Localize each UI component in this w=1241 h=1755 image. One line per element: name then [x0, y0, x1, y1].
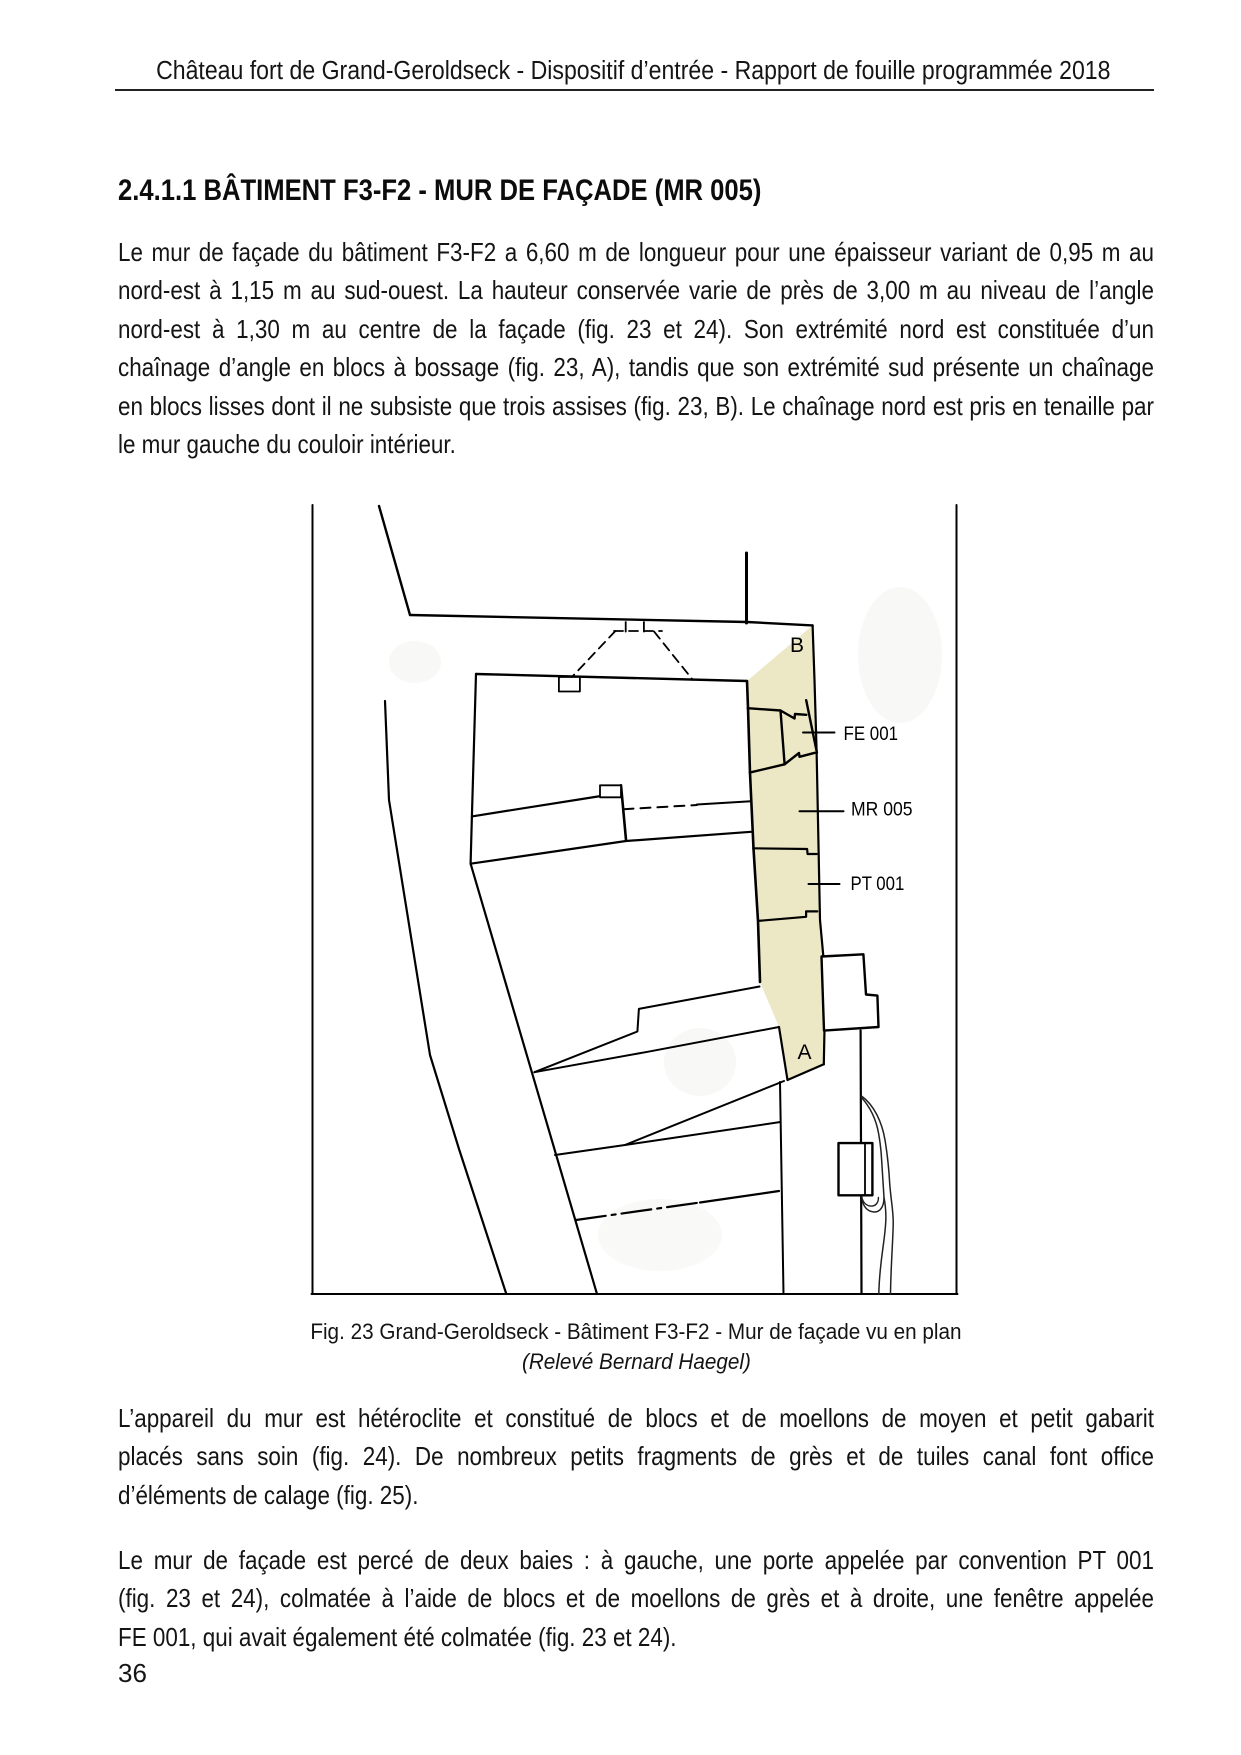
svg-text:A: A [798, 1041, 812, 1064]
svg-text:MR 005: MR 005 [851, 799, 913, 821]
svg-text:B: B [790, 634, 804, 657]
svg-text:PT 001: PT 001 [851, 873, 905, 895]
svg-text:FE 001: FE 001 [844, 723, 899, 745]
